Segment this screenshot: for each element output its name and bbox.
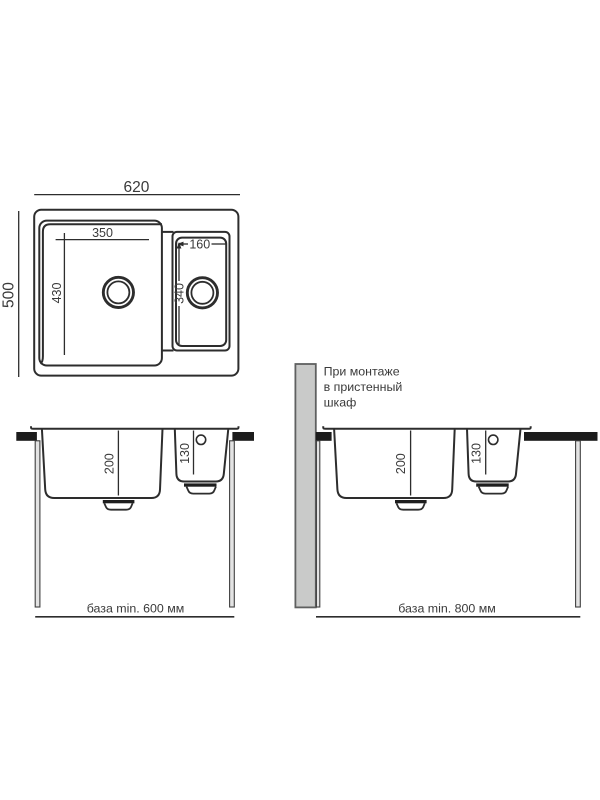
svg-text:в пристенный: в пристенный [324,380,403,394]
svg-text:350: 350 [92,226,113,240]
svg-text:база min. 800 мм: база min. 800 мм [398,602,496,616]
svg-text:340: 340 [173,283,187,304]
svg-text:430: 430 [50,283,64,304]
svg-text:500: 500 [0,282,17,308]
svg-text:160: 160 [189,237,210,251]
svg-text:база min. 600 мм: база min. 600 мм [87,602,185,616]
svg-text:130: 130 [469,443,483,464]
svg-text:шкаф: шкаф [324,395,357,409]
svg-text:200: 200 [103,453,117,474]
svg-text:130: 130 [178,443,192,464]
svg-text:При монтаже: При монтаже [324,364,400,378]
svg-text:620: 620 [123,179,149,196]
svg-text:200: 200 [394,453,408,474]
